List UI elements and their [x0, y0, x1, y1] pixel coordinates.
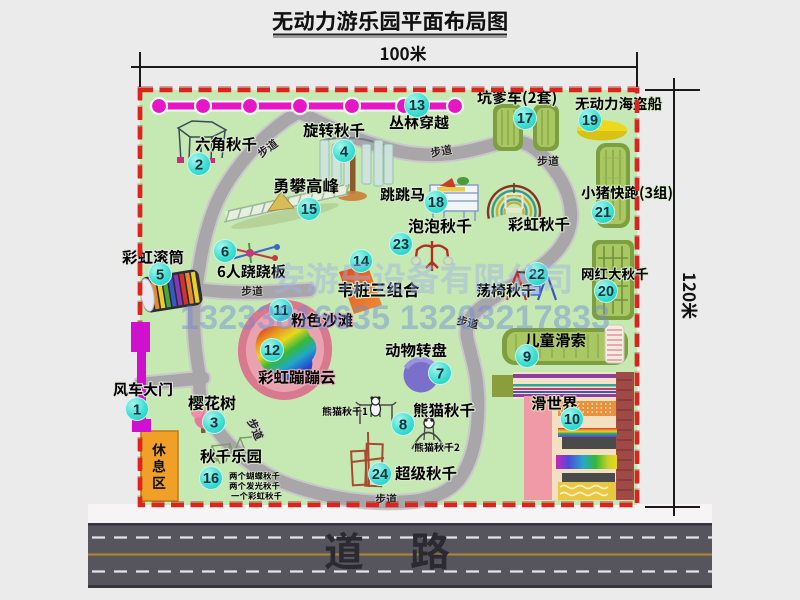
svg-text:9: 9	[523, 348, 531, 365]
svg-text:3: 3	[210, 414, 218, 431]
svg-text:8: 8	[399, 416, 407, 433]
svg-text:10: 10	[564, 412, 580, 428]
svg-text:6: 6	[221, 243, 229, 260]
svg-text:20: 20	[598, 284, 614, 300]
svg-text:13233816635 13203217833: 13233816635 13203217833	[180, 299, 610, 337]
svg-text:24: 24	[372, 467, 388, 483]
svg-text:18: 18	[428, 195, 444, 211]
svg-text:12: 12	[264, 343, 280, 359]
svg-text:17: 17	[517, 111, 533, 127]
svg-text:5: 5	[156, 266, 164, 283]
svg-text:16: 16	[203, 471, 219, 487]
svg-text:15: 15	[301, 202, 317, 218]
svg-text:7: 7	[436, 365, 444, 382]
svg-text:23: 23	[393, 237, 409, 253]
svg-text:2: 2	[195, 156, 203, 173]
svg-text:4: 4	[340, 143, 349, 160]
svg-text:19: 19	[582, 113, 598, 129]
svg-text:13: 13	[409, 98, 425, 114]
svg-text:21: 21	[595, 205, 611, 221]
svg-text:1: 1	[133, 401, 141, 418]
